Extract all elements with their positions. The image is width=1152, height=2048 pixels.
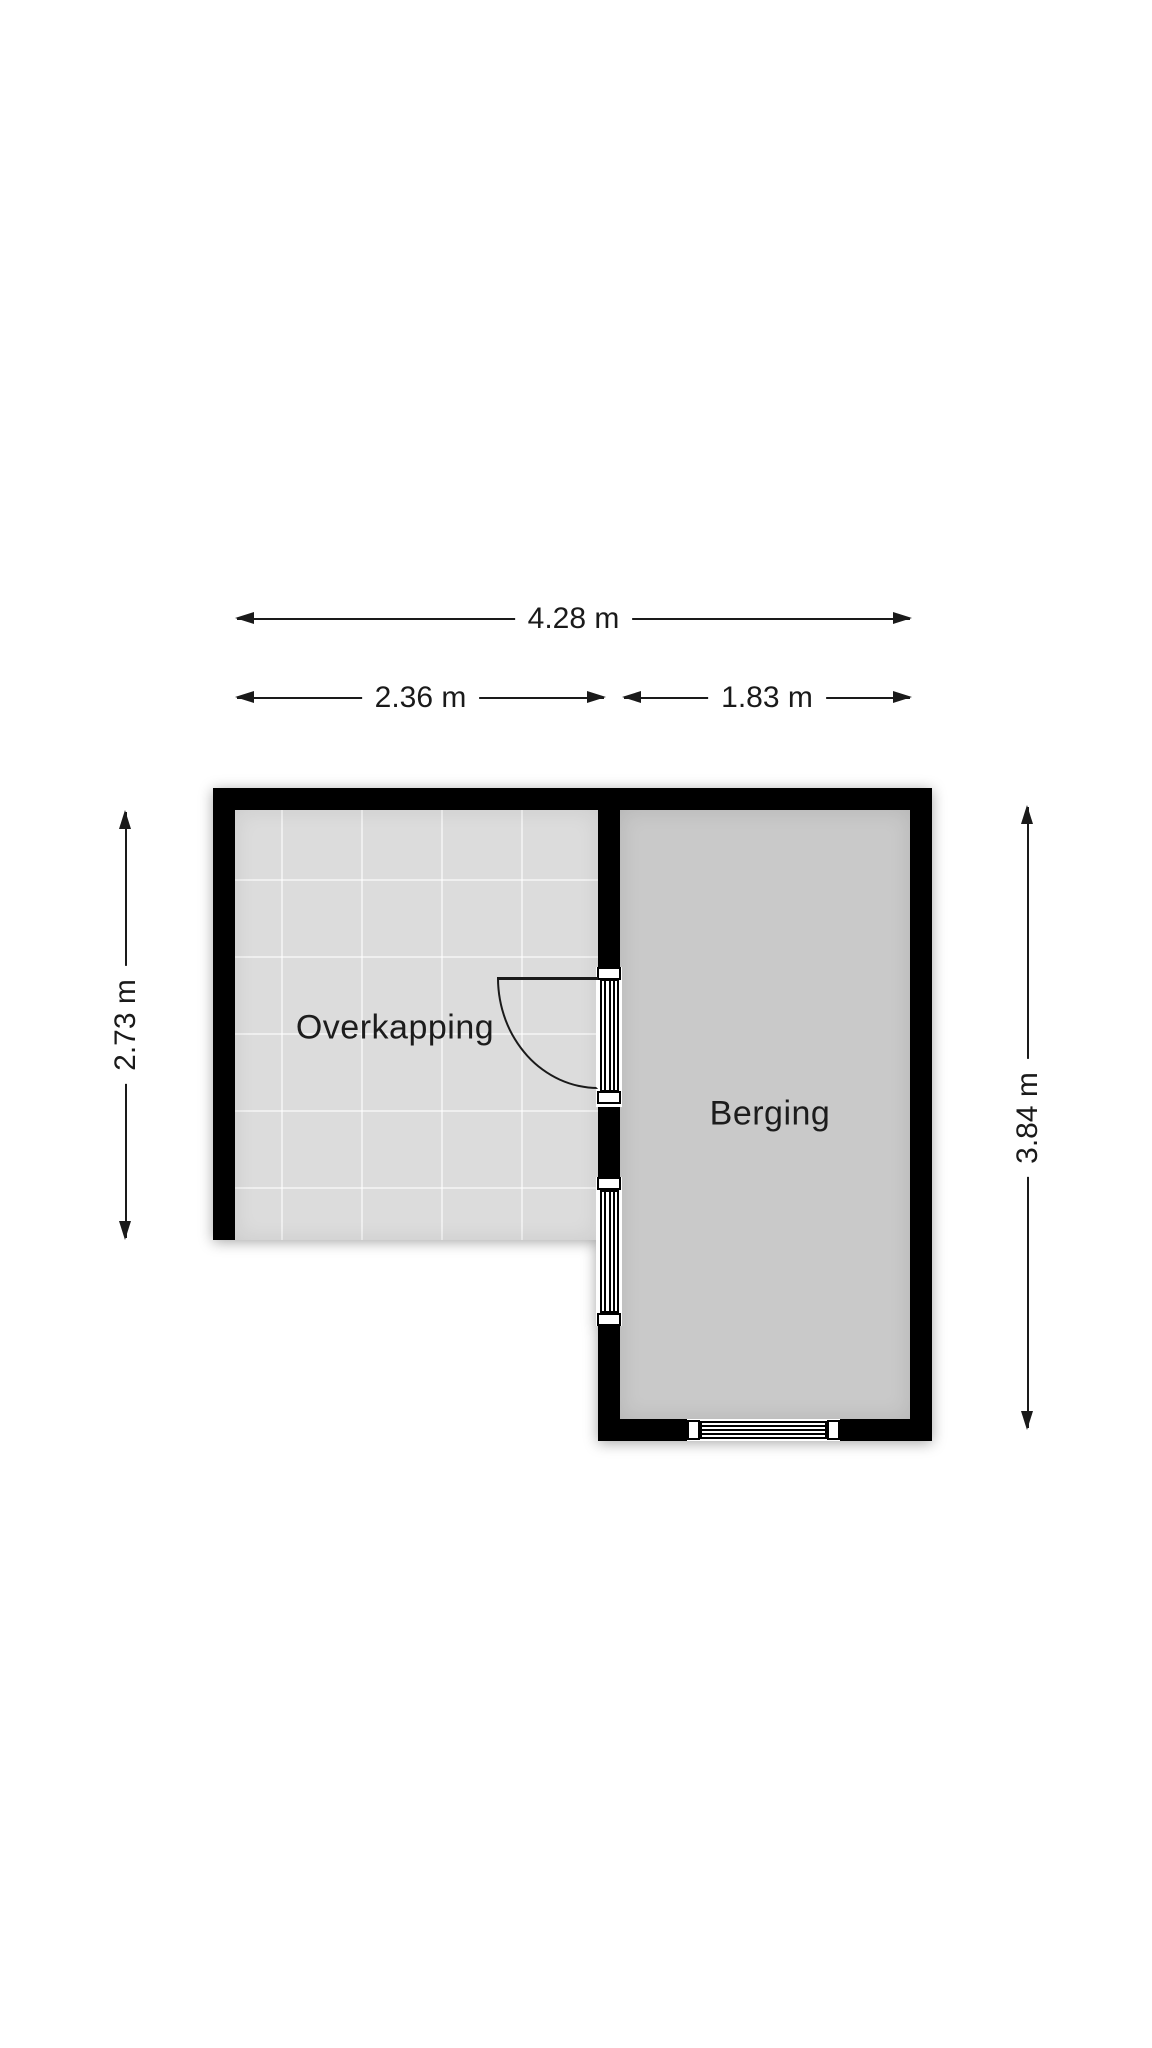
floorplan-drawing: Overkapping Berging [0, 0, 1152, 2048]
wall-right [910, 810, 932, 1441]
bottom-window [700, 1421, 827, 1439]
wall-top [213, 788, 932, 810]
room-label-overkapping: Overkapping [296, 1009, 494, 1048]
bottom-window-sill-right [827, 1420, 840, 1440]
window-pane-line [702, 1425, 825, 1427]
window-pane-line [613, 1192, 615, 1311]
wall-left [213, 810, 235, 1240]
bottom-window-sill-left [687, 1420, 700, 1440]
door-pane-line [609, 981, 611, 1090]
middle-window-sill-top [597, 1177, 621, 1190]
door-pane-line [604, 981, 606, 1090]
middle-window-sill-bottom [597, 1313, 621, 1326]
window-pane-line [702, 1429, 825, 1431]
room-label-berging: Berging [710, 1095, 831, 1134]
wall-middle [598, 810, 620, 1419]
middle-window [600, 1190, 619, 1313]
door-pane-line [613, 981, 615, 1090]
door-leaf [600, 979, 619, 1092]
window-pane-line [609, 1192, 611, 1311]
window-pane-line [604, 1192, 606, 1311]
door-sill-bottom [597, 1091, 621, 1104]
floorplan-canvas: 4.28 m 2.36 m 1.83 m 2.73 m 3.84 m [0, 0, 1152, 2048]
window-pane-line [702, 1433, 825, 1435]
